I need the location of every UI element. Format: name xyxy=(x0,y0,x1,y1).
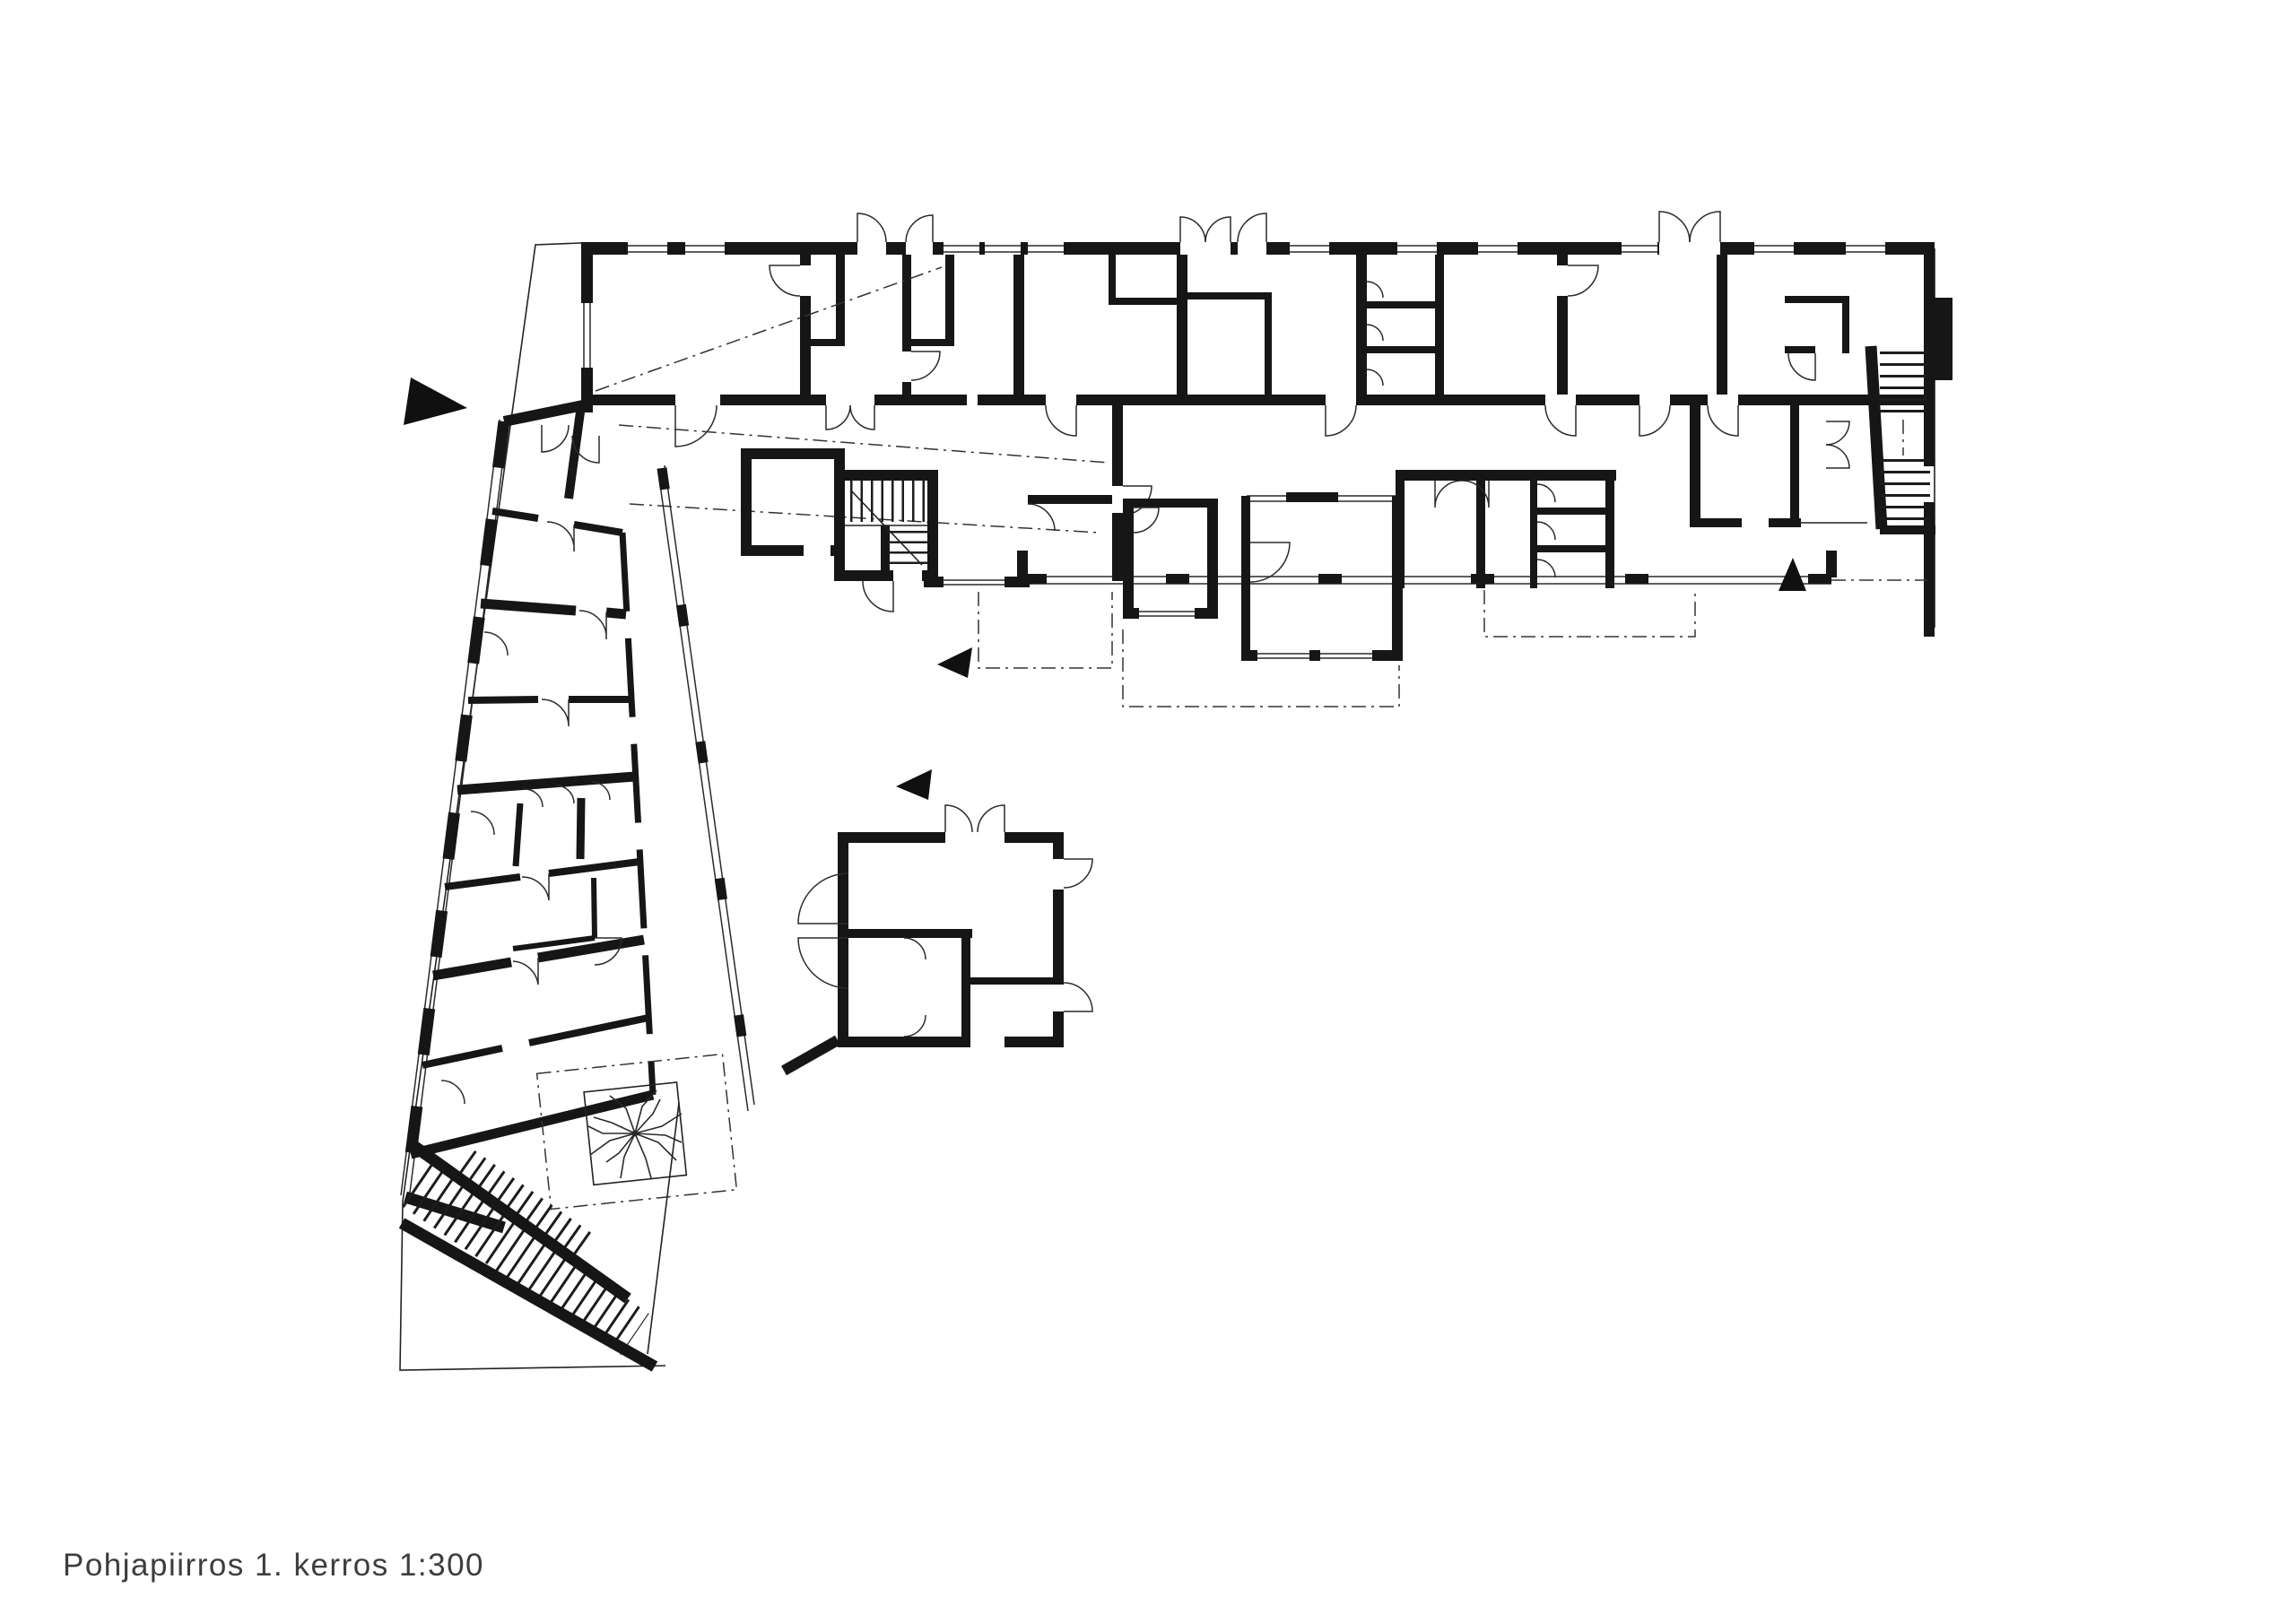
south-entrance-arrow xyxy=(1779,558,1806,591)
canopy-dashed-outlines xyxy=(978,590,1695,707)
floor-plan-drawing xyxy=(0,0,2296,1623)
courtyard-terrace xyxy=(537,1055,737,1210)
reference-dashdot-lines xyxy=(596,267,1927,580)
east-exterior-stair xyxy=(1826,346,1935,534)
entrance-arrows xyxy=(404,378,1806,800)
south-annex-rooms xyxy=(924,405,1867,661)
south-ramp-stair xyxy=(402,1142,655,1367)
corridor-north-walls xyxy=(581,395,1928,447)
court-entrance-arrow-lower xyxy=(896,769,932,800)
court-entrance-arrow-upper xyxy=(937,647,972,678)
floor-plan-page: Pohjapiirros 1. kerros 1:300 xyxy=(0,0,2296,1623)
top-wing-partitions xyxy=(770,255,1849,395)
corridor-south-glazing xyxy=(1017,551,1837,584)
drawing-caption: Pohjapiirros 1. kerros 1:300 xyxy=(63,1548,484,1584)
left-wing xyxy=(401,405,754,1228)
west-entrance-arrow xyxy=(404,378,467,425)
main-stair-core xyxy=(741,448,938,612)
inner-corner-annex xyxy=(784,805,1092,1071)
top-wall-windows xyxy=(580,241,1885,368)
